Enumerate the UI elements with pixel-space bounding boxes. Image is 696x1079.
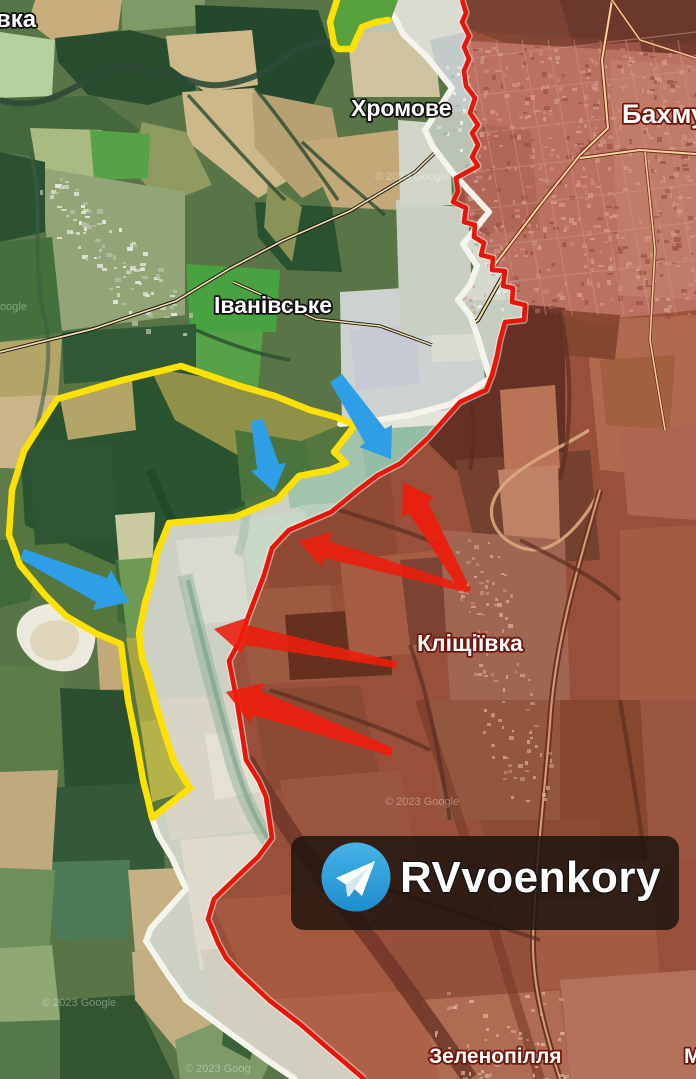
- svg-text:© 2023 Goog: © 2023 Goog: [185, 1063, 251, 1075]
- svg-text:Зеленопілля: Зеленопілля: [429, 1045, 562, 1068]
- svg-text:Іванівське: Іванівське: [214, 292, 332, 318]
- svg-text:© 2023 Google: © 2023 Google: [385, 796, 459, 808]
- svg-text:Бахмут: Бахмут: [622, 99, 696, 129]
- svg-text:Хромове: Хромове: [351, 95, 452, 121]
- svg-text:© 2023 Google: © 2023 Google: [375, 171, 449, 183]
- svg-text:oogle: oogle: [0, 301, 27, 313]
- svg-text:© 2023 Google: © 2023 Google: [42, 997, 116, 1009]
- svg-text:М: М: [684, 1045, 696, 1068]
- svg-text:вка: вка: [0, 6, 37, 33]
- svg-text:RVvoenkory: RVvoenkory: [400, 853, 661, 902]
- svg-text:Кліщіївка: Кліщіївка: [417, 630, 523, 656]
